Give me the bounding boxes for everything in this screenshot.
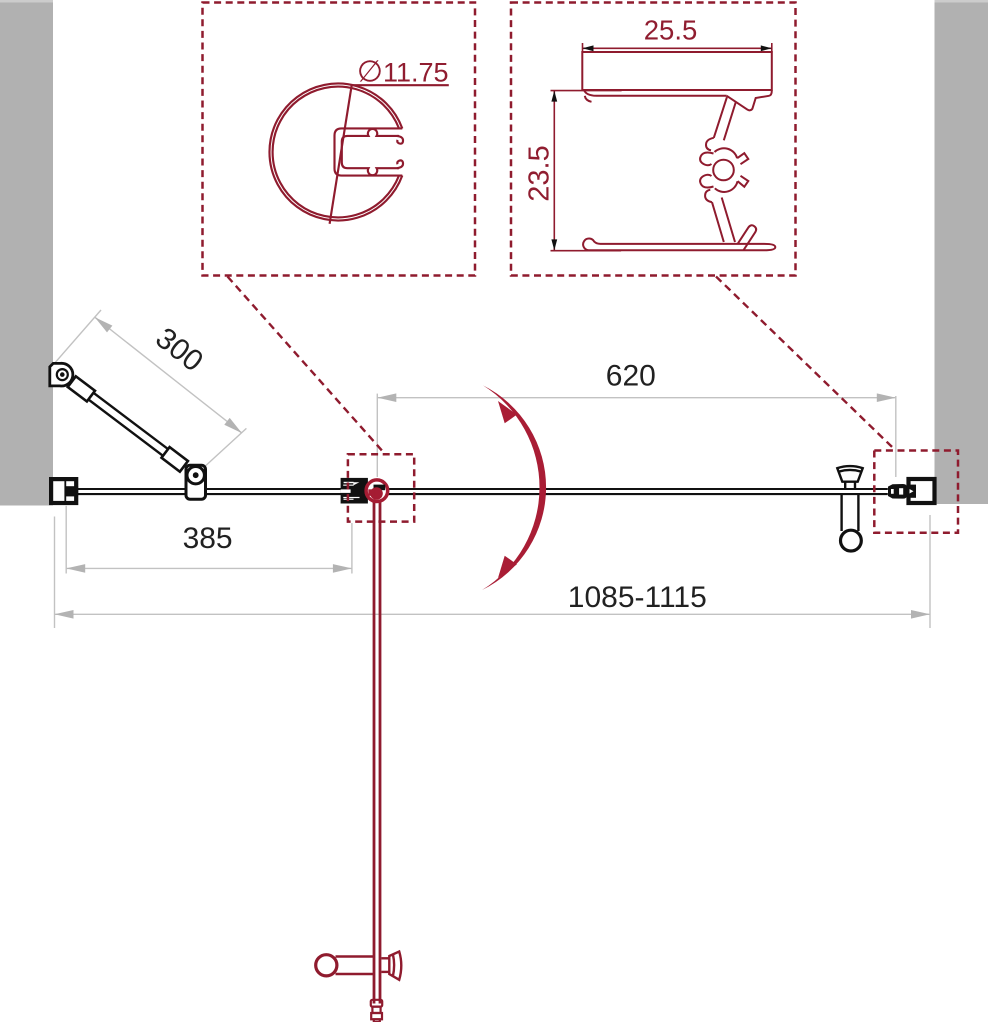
svg-text:300: 300 bbox=[149, 321, 209, 378]
svg-text:25.5: 25.5 bbox=[644, 15, 698, 46]
svg-text:385: 385 bbox=[183, 522, 233, 555]
svg-text:∅11.75: ∅11.75 bbox=[357, 56, 449, 89]
svg-text:1085-1115: 1085-1115 bbox=[568, 581, 707, 614]
svg-text:620: 620 bbox=[606, 360, 656, 393]
svg-text:23.5: 23.5 bbox=[524, 145, 556, 201]
